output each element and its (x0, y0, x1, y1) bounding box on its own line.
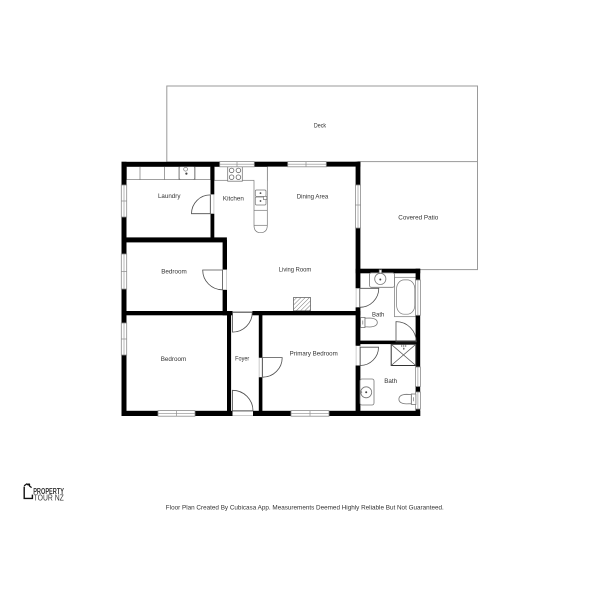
svg-text:Bedroom: Bedroom (161, 356, 187, 363)
svg-text:Floor Plan Created By Cubicasa: Floor Plan Created By Cubicasa App. Meas… (166, 504, 444, 511)
svg-text:Deck: Deck (314, 123, 327, 130)
svg-text:Dining Area: Dining Area (297, 194, 329, 201)
svg-text:Living Room: Living Room (279, 267, 311, 274)
svg-text:Foyer: Foyer (235, 356, 250, 363)
svg-text:Kitchen: Kitchen (223, 196, 244, 203)
svg-text:Covered Patio: Covered Patio (398, 215, 438, 222)
svg-text:Bedroom: Bedroom (161, 268, 187, 275)
svg-text:Bath: Bath (372, 312, 385, 319)
svg-text:Bath: Bath (384, 378, 397, 385)
svg-text:Primary Bedroom: Primary Bedroom (290, 351, 338, 358)
svg-text:Laundry: Laundry (158, 193, 181, 200)
svg-text:TOUR NZ: TOUR NZ (34, 494, 64, 503)
